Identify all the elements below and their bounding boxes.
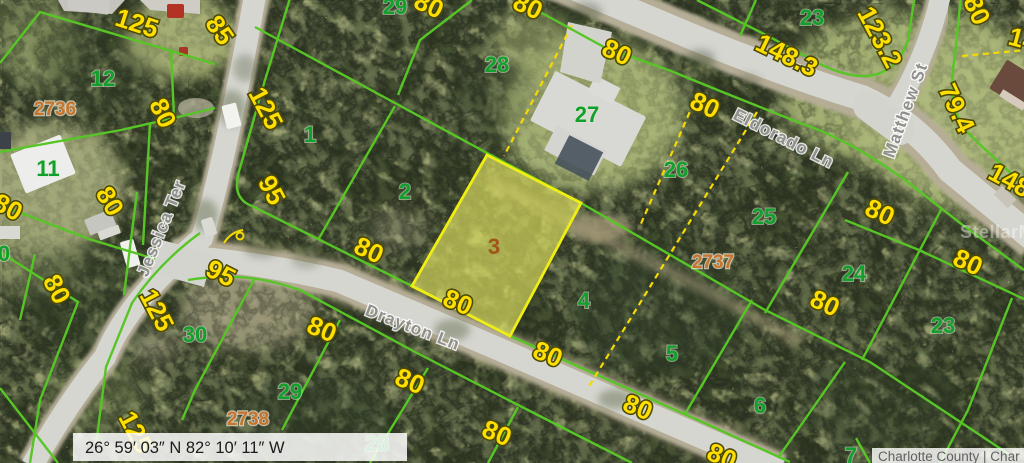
svg-text:30: 30 xyxy=(183,322,207,347)
svg-text:2738: 2738 xyxy=(227,409,269,430)
svg-text:4: 4 xyxy=(578,288,591,313)
svg-text:2: 2 xyxy=(399,179,411,204)
svg-text:27: 27 xyxy=(575,102,599,127)
svg-text:0: 0 xyxy=(0,241,10,266)
svg-text:29: 29 xyxy=(383,0,407,19)
svg-text:Charlotte County | Char: Charlotte County | Char xyxy=(878,449,1020,463)
svg-text:23: 23 xyxy=(800,5,824,30)
svg-text:12: 12 xyxy=(91,66,115,91)
svg-text:6: 6 xyxy=(754,393,766,418)
svg-text:26: 26 xyxy=(664,157,688,182)
svg-text:24: 24 xyxy=(842,261,867,286)
svg-text:23: 23 xyxy=(931,313,955,338)
svg-text:7: 7 xyxy=(845,443,857,463)
svg-text:28: 28 xyxy=(485,52,509,77)
svg-text:2737: 2737 xyxy=(692,252,734,273)
svg-text:26° 59′ 03″ N 82° 10′ 11″ W: 26° 59′ 03″ N 82° 10′ 11″ W xyxy=(85,439,285,457)
svg-text:StellarMLS: StellarMLS xyxy=(960,222,1024,242)
svg-text:2736: 2736 xyxy=(34,99,76,120)
svg-text:1: 1 xyxy=(304,122,316,147)
svg-text:5: 5 xyxy=(666,341,678,366)
svg-text:29: 29 xyxy=(278,379,302,404)
svg-text:3: 3 xyxy=(488,234,500,259)
svg-text:25: 25 xyxy=(752,204,776,229)
svg-text:11: 11 xyxy=(36,156,59,181)
